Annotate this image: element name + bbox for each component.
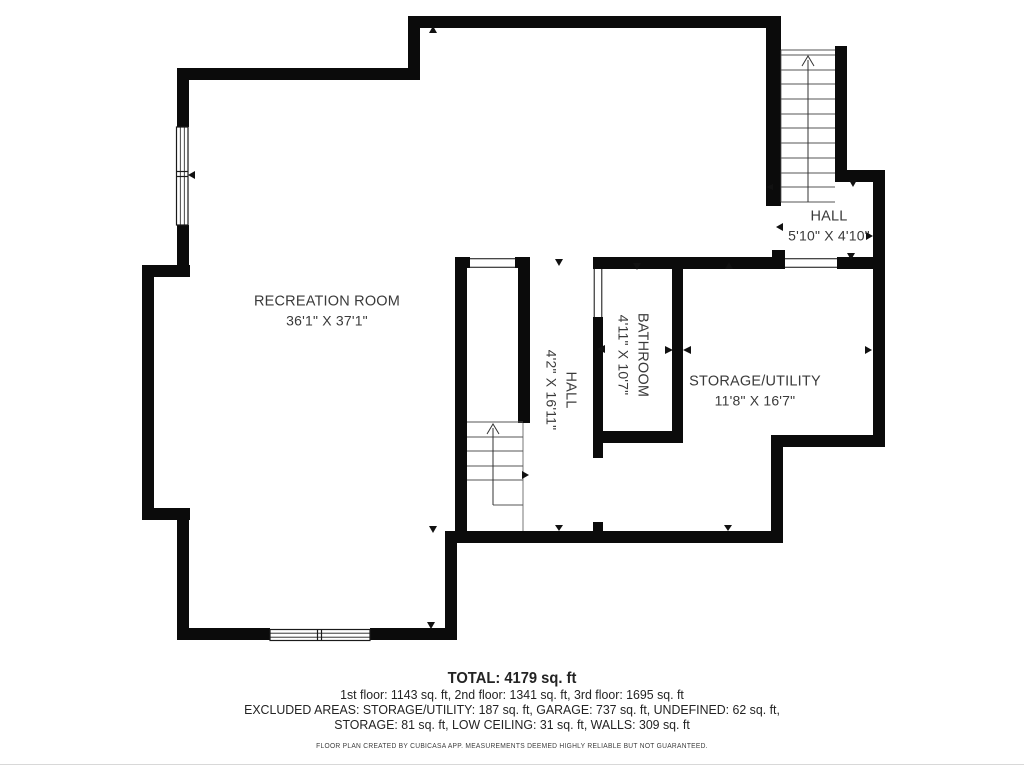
wall-segment (445, 531, 457, 640)
room-label-bathroom: BATHROOM 4'11" X 10'7" (613, 313, 652, 397)
room-dims: 4'11" X 10'7" (613, 313, 632, 397)
wall-segment (672, 257, 683, 443)
marker-down-icon (555, 525, 563, 531)
summary-excluded-2: STORAGE: 81 sq. ft, LOW CEILING: 31 sq. … (26, 717, 999, 732)
marker-left-icon (776, 223, 783, 231)
wall-segment (177, 508, 189, 640)
wall-segment (455, 257, 467, 531)
summary-total: TOTAL: 4179 sq. ft (26, 670, 999, 687)
marker-right-icon (865, 346, 872, 354)
room-name: HALL (788, 206, 870, 226)
room-name: BATHROOM (633, 313, 653, 397)
area-summary: TOTAL: 4179 sq. ft 1st floor: 1143 sq. f… (0, 670, 1024, 754)
summary-floors: 1st floor: 1143 sq. ft, 2nd floor: 1341 … (26, 687, 999, 702)
stairs-up-arrow-icon (487, 424, 499, 505)
marker-down-icon (429, 526, 437, 533)
marker-down-icon (427, 622, 435, 629)
window-left (177, 127, 189, 225)
wall-segment (455, 257, 470, 268)
room-dims: 4'2" X 16'11" (541, 350, 560, 431)
room-label-recreation-room: RECREATION ROOM 36'1" X 37'1" (254, 291, 400, 330)
stairs-up-arrow-icon (802, 56, 814, 202)
summary-excluded-1: EXCLUDED AREAS: STORAGE/UTILITY: 187 sq.… (26, 702, 999, 717)
room-name: HALL (561, 350, 581, 431)
staircase-upper-right (781, 50, 835, 202)
wall-segment (445, 531, 783, 543)
wall-segment (177, 68, 189, 127)
wall-segment (593, 522, 603, 543)
wall-segment (518, 257, 530, 423)
floor-plan-page: RECREATION ROOM 36'1" X 37'1" HALL 4'2" … (0, 0, 1024, 768)
wall-segment (370, 628, 457, 640)
wall-segment (593, 431, 683, 443)
marker-right-icon (665, 346, 673, 354)
wall-segment (408, 16, 781, 28)
room-label-storage-utility: STORAGE/UTILITY 11'8" X 16'7" (689, 371, 821, 410)
wall-segment (771, 435, 885, 447)
wall-segment (177, 68, 420, 80)
room-dims: 5'10" X 4'10" (788, 226, 870, 245)
summary-disclaimer: FLOOR PLAN CREATED BY CUBICASA APP. MEAS… (26, 739, 999, 754)
marker-left-icon (188, 171, 195, 179)
wall-segment (766, 16, 781, 206)
room-name: STORAGE/UTILITY (689, 371, 821, 391)
marker-down-icon (555, 259, 563, 266)
room-dims: 11'8" X 16'7" (689, 391, 821, 410)
wall-segment (772, 250, 785, 268)
wall-segment (873, 182, 885, 447)
room-name: RECREATION ROOM (254, 291, 400, 311)
room-dims: 36'1" X 37'1" (254, 311, 400, 330)
wall-segment (593, 257, 785, 269)
wall-segment (177, 628, 270, 640)
wall-segment (835, 170, 885, 182)
room-label-hall-upper-right: HALL 5'10" X 4'10" (788, 206, 870, 245)
marker-right-icon (522, 471, 529, 479)
marker-left-icon (683, 346, 691, 354)
marker-down-icon (724, 525, 732, 531)
wall-segment (835, 46, 847, 170)
wall-segment (771, 435, 783, 543)
window-bottom (270, 630, 370, 641)
marker-down-icon (849, 180, 857, 187)
floor-plan-canvas (0, 0, 1024, 768)
page-bottom-divider (0, 764, 1024, 765)
room-label-hall-central: HALL 4'2" X 16'11" (541, 350, 580, 431)
staircase-central (467, 422, 523, 531)
wall-segment (515, 257, 530, 268)
wall-segment (142, 265, 154, 520)
